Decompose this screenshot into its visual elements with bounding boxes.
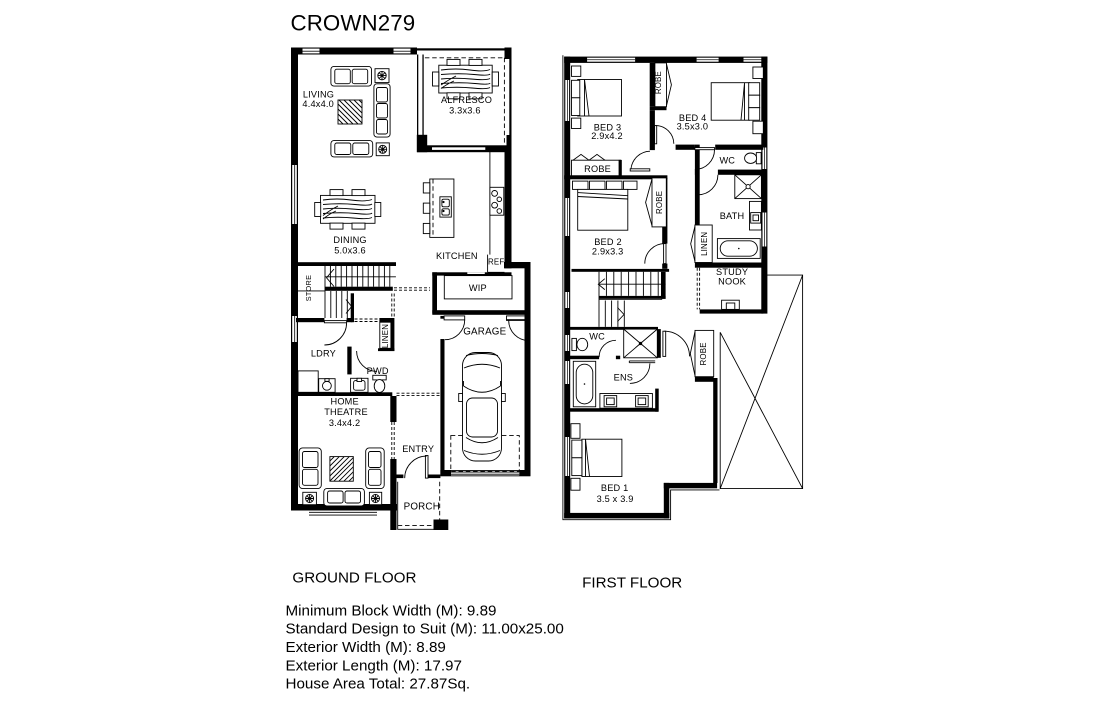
svg-text:PWD: PWD <box>367 366 389 376</box>
svg-text:ALFRESCO: ALFRESCO <box>441 95 492 105</box>
svg-text:STORE: STORE <box>304 275 313 302</box>
svg-text:ROBE: ROBE <box>699 342 708 365</box>
svg-text:LINEN: LINEN <box>381 324 390 348</box>
svg-text:THEATRE: THEATRE <box>324 407 368 417</box>
svg-text:BED 1: BED 1 <box>601 483 629 493</box>
svg-text:Exterior Width (M): 8.89: Exterior Width (M): 8.89 <box>286 639 446 656</box>
svg-text:ENS: ENS <box>614 372 634 382</box>
svg-text:Standard Design to Suit (M): 1: Standard Design to Suit (M): 11.00x25.00 <box>286 621 564 638</box>
svg-text:2.9x4.2: 2.9x4.2 <box>591 131 623 141</box>
svg-text:3.5x3.0: 3.5x3.0 <box>677 121 709 131</box>
svg-text:WIP: WIP <box>469 283 487 293</box>
svg-text:FIRST FLOOR: FIRST FLOOR <box>582 575 682 592</box>
svg-text:3.3x3.6: 3.3x3.6 <box>449 106 481 116</box>
svg-text:ROBE: ROBE <box>584 164 611 174</box>
svg-text:NOOK: NOOK <box>718 277 747 287</box>
svg-text:House Area Total: 27.87Sq.: House Area Total: 27.87Sq. <box>286 676 471 693</box>
svg-text:REF: REF <box>488 257 504 266</box>
svg-text:DINING: DINING <box>333 235 366 245</box>
svg-text:PORCH: PORCH <box>404 502 440 513</box>
svg-text:3.5 x 3.9: 3.5 x 3.9 <box>597 494 634 504</box>
svg-text:KITCHEN: KITCHEN <box>436 251 478 261</box>
svg-text:Exterior Length (M): 17.97: Exterior Length (M): 17.97 <box>286 657 462 674</box>
svg-text:ENTRY: ENTRY <box>402 444 434 454</box>
svg-text:GROUND FLOOR: GROUND FLOOR <box>292 570 416 587</box>
svg-text:4.4x4.0: 4.4x4.0 <box>302 99 334 109</box>
svg-text:ROBE: ROBE <box>655 191 664 214</box>
svg-text:HOME: HOME <box>331 396 359 406</box>
svg-text:LDRY: LDRY <box>311 349 336 359</box>
svg-text:WC: WC <box>719 156 735 166</box>
svg-text:Minimum Block Width (M): 9.89: Minimum Block Width (M): 9.89 <box>286 602 497 619</box>
svg-text:3.4x4.2: 3.4x4.2 <box>329 418 361 428</box>
svg-text:LIVING: LIVING <box>303 89 334 99</box>
svg-text:2.9x3.3: 2.9x3.3 <box>592 246 624 256</box>
svg-text:CROWN279: CROWN279 <box>291 11 416 36</box>
svg-text:BATH: BATH <box>720 211 745 221</box>
svg-text:5.0x3.6: 5.0x3.6 <box>334 246 366 256</box>
svg-text:ROBE: ROBE <box>654 71 663 94</box>
svg-text:WC: WC <box>589 332 605 342</box>
svg-text:GARAGE: GARAGE <box>463 327 506 338</box>
svg-text:LINEN: LINEN <box>700 232 709 256</box>
